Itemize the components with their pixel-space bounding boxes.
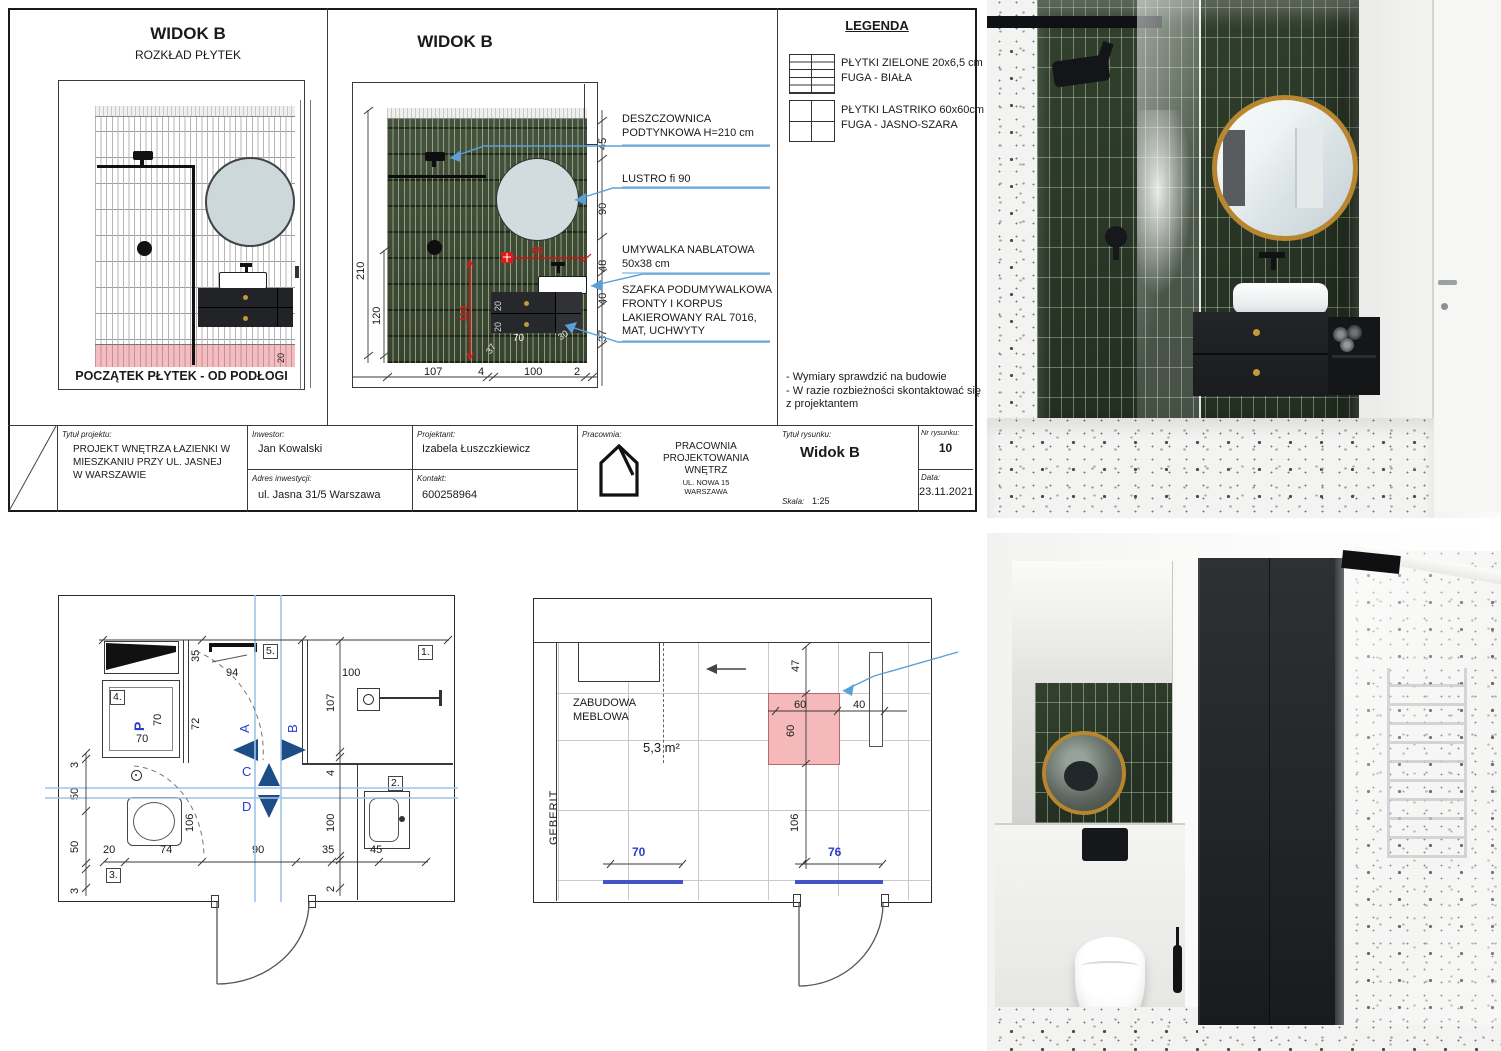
project-title: PROJEKT WNĘTRZA ŁAZIENKI W MIESZKANIU PR…: [73, 443, 230, 482]
dim-label: 40: [853, 699, 865, 713]
render-round-mirror: [1212, 95, 1358, 241]
legend-tile-lastriko-icon: [789, 100, 835, 142]
toilet-bowl: [133, 802, 175, 841]
date-label: Data:: [921, 473, 940, 482]
shower-head-stem: [140, 159, 144, 166]
section-arrow-d: [258, 795, 280, 818]
titleblock-top-line: [8, 425, 973, 426]
dim-label: 20: [276, 353, 287, 363]
reflection-dark-blob: [1064, 761, 1098, 791]
render-vanity-knob: [1253, 369, 1260, 376]
dim-label: 60: [794, 699, 806, 713]
drawing-title-value: Widok B: [800, 444, 860, 461]
render-shower-mixer: [1105, 226, 1127, 248]
plan1-wall: [188, 640, 189, 763]
legend-item-text: FUGA - JASNO-SZARA: [841, 119, 958, 133]
dim-label: 60: [785, 725, 799, 737]
door-handle: [1438, 280, 1457, 285]
contact-label: Kontakt:: [417, 474, 446, 483]
plan2-blue-wall-bar: [795, 880, 883, 884]
washbasin-bowl: [369, 798, 399, 842]
dim-label: 40: [597, 293, 611, 305]
section-arrow-a: [233, 739, 258, 761]
dim-label: 47: [790, 660, 804, 672]
panel2-ceiling-strip: [387, 108, 587, 119]
house-roof-line: [619, 446, 633, 475]
plan2-room-label: ZABUDOWA MEBLOWA: [573, 696, 636, 724]
dim-label: 210: [355, 262, 369, 280]
dim-label: 90: [597, 203, 611, 215]
basin-tap-stem: [557, 265, 560, 273]
vanity-side-split: [277, 288, 278, 327]
vanity-knob: [243, 295, 248, 300]
dim-label: 120: [371, 307, 385, 325]
annotation-line: DESZCZOWNICA: [622, 113, 754, 127]
panel1-door-edge: [300, 100, 301, 390]
shower-mixer-icon: [137, 241, 152, 256]
door-jamb: [211, 895, 219, 908]
panel1-ceiling-strip: [95, 106, 295, 117]
render-bottom: [987, 533, 1501, 1051]
floor-drain-dot: [135, 774, 137, 776]
annotation-underline: [622, 186, 770, 188]
red-dim-label: 85: [532, 246, 543, 259]
note-line: - Wymiary sprawdzić na budowie: [786, 371, 981, 385]
plan2-left-wall: [556, 642, 557, 901]
dim-label: 107: [325, 694, 339, 712]
panel1-footer-note: POCZĄTEK PŁYTEK - OD PODŁOGI: [60, 369, 303, 383]
fixture-mark: 3.: [106, 868, 121, 883]
dim-label: 100: [342, 667, 360, 681]
render-open-shelf: [1328, 317, 1380, 395]
door-jamb: [881, 894, 889, 907]
section-label-a: A: [237, 724, 252, 733]
vanity-knob: [243, 316, 248, 321]
dim-label: 35: [322, 844, 334, 858]
plan1-wall: [357, 765, 358, 900]
studio-address-line: UL. NOWA 15: [640, 478, 772, 487]
annotation-szafka: SZAFKA PODUMYWALKOWA FRONTY I KORPUS LAK…: [622, 284, 772, 339]
legend-item-text: PŁYTKI ZIELONE 20x6,5 cm: [841, 57, 983, 71]
mirror-reflection-door: [1295, 128, 1323, 208]
panel1-title: WIDOK B: [78, 24, 298, 44]
panel1-shower-frame-side: [192, 165, 195, 365]
dim-label: 3: [69, 762, 83, 768]
washbasin-tap: [399, 816, 405, 822]
shower-label-p: P: [131, 722, 147, 731]
render-glass-reflection: [1137, 110, 1197, 310]
door-keyhole: [1441, 303, 1448, 310]
panel1-door-handle: [295, 266, 299, 278]
dim-label: 20: [493, 322, 504, 332]
dim-label: 107: [424, 366, 442, 380]
number-value: 10: [918, 441, 973, 455]
annotation-line: MAT, UCHWYTY: [622, 325, 772, 339]
annotation-umywalka: UMYWALKA NABLATOWA 50x38 cm: [622, 244, 755, 272]
annotation-line: FRONTY I KORPUS: [622, 298, 772, 312]
plan2-geberit-label: GEBERIT: [548, 790, 562, 845]
designer-value: Izabela Łuszczkiewicz: [422, 443, 530, 457]
wardrobe-seam: [1269, 558, 1270, 1051]
plan1-shower-head-dot: [363, 694, 374, 705]
plan1-door-opening: [218, 897, 308, 903]
note-line: z projektantem: [786, 398, 981, 412]
legend-tile-green-icon: [789, 54, 835, 94]
annotation-line: SZAFKA PODUMYWALKOWA: [622, 284, 772, 298]
mirror-icon: [496, 158, 579, 241]
section-label-d: D: [242, 799, 251, 814]
dim-label: 100: [325, 814, 339, 832]
render-vanity-split: [1193, 353, 1328, 355]
dim-label: 2: [325, 886, 339, 892]
render-terrazzo-floor: [987, 418, 1434, 518]
titleblock-divider: [57, 425, 58, 512]
blue-dim-label: 76: [828, 845, 841, 859]
dim-label: 45: [370, 844, 382, 858]
dim-label: 106: [184, 814, 198, 832]
render-wall-tap-spout: [1271, 257, 1276, 270]
fixture-mark: 2.: [388, 776, 403, 791]
dim-label: 70: [136, 733, 148, 747]
render-flush-plate: [1082, 828, 1128, 861]
render-shower-rail: [987, 16, 1162, 28]
panel2-title: WIDOK B: [345, 32, 565, 52]
dim-label: 70: [152, 714, 166, 726]
dim-label: 90: [252, 844, 264, 858]
panel-divider-1: [327, 8, 328, 425]
contact-value: 600258964: [422, 489, 477, 503]
vanity-drawer-split: [198, 307, 293, 308]
plan2-radiator: [869, 652, 883, 747]
grab-bar-icon: [209, 643, 257, 647]
annotation-line: LAKIEROWANY RAL 7016,: [622, 312, 772, 326]
dim-label: 50: [69, 788, 83, 800]
room-label-line: ZABUDOWA: [573, 696, 636, 710]
designer-label: Projektant:: [417, 430, 455, 439]
vanity-knob: [524, 322, 529, 327]
annotation-line: UMYWALKA NABLATOWA: [622, 244, 755, 258]
render-door: [1432, 0, 1501, 512]
fixture-mark: 1.: [418, 645, 433, 660]
legend-title: LEGENDA: [777, 18, 977, 33]
dim-label: 2: [574, 366, 580, 380]
investor-value: Jan Kowalski: [258, 443, 322, 457]
date-value: 23.11.2021: [919, 486, 973, 500]
studio-address-line: WARSZAWA: [640, 487, 772, 496]
plan1-wall: [183, 640, 184, 763]
panel2-niche-edge-v: [584, 84, 585, 144]
render-towel-radiator: [1387, 668, 1467, 858]
dim-label: 72: [190, 718, 204, 730]
shelf-divider: [1332, 355, 1376, 358]
panel1-door-edge: [310, 100, 311, 388]
drawing-title-label: Tytuł rysunku:: [782, 430, 831, 439]
render-toilet-brush-handle: [1176, 927, 1179, 947]
titleblock-divider: [577, 425, 578, 512]
address-value: ul. Jasna 31/5 Warszawa: [258, 489, 380, 503]
studio-name-line: WNĘTRZ: [640, 465, 772, 477]
plan1-shelf-recess: [104, 641, 179, 674]
fixture-mark: 4.: [110, 690, 125, 705]
studio-name-line: PROJEKTOWANIA: [640, 453, 772, 465]
dim-label: 50: [69, 841, 83, 853]
annotation-underline: [622, 340, 770, 342]
room-label-line: MEBLOWA: [573, 710, 636, 724]
mirror-icon: [205, 157, 295, 247]
project-title-line: PROJEKT WNĘTRZA ŁAZIENKI W: [73, 443, 230, 456]
dim-label: 35: [190, 650, 204, 662]
shower-mixer-icon: [427, 240, 442, 255]
panel2-niche-edge-h: [584, 144, 597, 145]
plan1-door-swing: [217, 902, 309, 984]
section-label-b: B: [285, 724, 300, 733]
annotation-underline: [622, 272, 770, 274]
dim-label: 48: [597, 260, 611, 272]
dim-label: 20: [103, 844, 115, 858]
annotation-line: 50x38 cm: [622, 258, 755, 272]
vanity-drawer-split: [491, 313, 581, 314]
number-label: Nr rysunku:: [921, 428, 959, 437]
legend-item-text: PŁYTKI LASTRIKO 60x60cm: [841, 104, 984, 118]
dim-label: 37: [597, 330, 611, 342]
plan1-wall: [307, 640, 308, 764]
legend-notes: - Wymiary sprawdzić na budowie - W razie…: [786, 371, 981, 412]
section-label-c: C: [242, 764, 251, 779]
render-vanity-knob: [1253, 329, 1260, 336]
render-wardrobe: [1198, 558, 1335, 1051]
dim-label: 100: [524, 366, 542, 380]
studio-name: PRACOWNIA PROJEKTOWANIA WNĘTRZ UL. NOWA …: [640, 441, 772, 496]
door-jamb: [793, 894, 801, 907]
plan2-blue-wall-bar: [603, 880, 683, 884]
plan1-shower-arm: [379, 697, 441, 699]
door-jamb: [308, 895, 316, 908]
render-reflected-round-mirror: [1042, 731, 1126, 815]
plan2-door-opening: [800, 896, 882, 903]
vanity-knob: [524, 301, 529, 306]
panel1-first-tile-row: [95, 344, 295, 367]
scale-label: Skala:: [782, 497, 804, 506]
note-line: - W razie rozbieżności skontaktować się: [786, 385, 981, 399]
legend-item-text: FUGA - BIAŁA: [841, 72, 912, 86]
annotation-line: LUSTRO fi 90: [622, 173, 690, 187]
dim-label: 74: [160, 844, 172, 858]
dim-label: 20: [493, 301, 504, 311]
project-title-line: MIESZKANIU PRZY UL. JASNEJ: [73, 456, 230, 469]
render-floor-left: [987, 1007, 1198, 1033]
studio-house-logo: [594, 441, 640, 499]
basin-icon: [219, 272, 267, 289]
dim-label: 3: [69, 888, 83, 894]
blue-dim-label: 70: [632, 845, 645, 859]
grab-bar-end: [254, 643, 257, 652]
dim-label: 70: [513, 333, 524, 346]
project-title-line: W WARSZAWIE: [73, 469, 230, 482]
dim-label: 94: [226, 667, 238, 681]
render-toilet-brush: [1173, 945, 1182, 993]
wardrobe-edge-highlight: [1198, 558, 1200, 1051]
red-dim-label: 110: [459, 306, 472, 322]
panel2-shower-partition: [388, 175, 486, 178]
titleblock-split-line: [247, 469, 577, 470]
panel1-subtitle: ROZKŁAD PŁYTEK: [78, 48, 298, 62]
grab-bar-end: [209, 643, 212, 652]
annotation-underline: [622, 144, 770, 146]
render-vessel-basin: [1233, 283, 1328, 314]
plan2-door-swing: [799, 903, 883, 986]
investor-label: Inwestor:: [252, 430, 284, 439]
shower-head-stem: [432, 160, 436, 167]
towel-roll: [1340, 338, 1354, 352]
plan1-shower-arm-plate: [439, 690, 442, 706]
studio-label: Pracownia:: [582, 430, 622, 439]
render-mixer-stem: [1113, 246, 1119, 260]
annotation-deszczownica: DESZCZOWNICA PODTYNKOWA H=210 cm: [622, 113, 754, 141]
section-arrow-c: [258, 763, 280, 786]
titleblock-split-line: [918, 469, 973, 470]
annotation-lustro: LUSTRO fi 90: [622, 173, 690, 187]
section-arrow-b: [281, 739, 306, 761]
screenshot-root: WIDOK B ROZKŁAD PŁYTEK 20 POCZĄTEK PŁYTE…: [0, 0, 1501, 1051]
render-toilet-seat-line: [1081, 961, 1139, 971]
mirror-reflection-dark: [1223, 130, 1245, 206]
scale-value: 1:25: [812, 496, 830, 506]
address-label: Adres inwestycji:: [252, 474, 312, 483]
plan2-niche: [578, 642, 660, 682]
annotation-line: PODTYNKOWA H=210 cm: [622, 127, 754, 141]
render-top: [987, 0, 1501, 518]
plan2-area-label: 5,3 m²: [643, 740, 680, 755]
plan1-wall: [302, 763, 453, 765]
panel-divider-2: [777, 8, 778, 425]
panel1-shower-frame-top: [97, 165, 194, 168]
dim-label: 106: [789, 814, 803, 832]
wardrobe-gap-shadow: [1335, 558, 1344, 1051]
fixture-mark: 5.: [263, 644, 278, 659]
dim-label: 4: [325, 770, 339, 776]
project-title-label: Tytuł projektu:: [62, 430, 112, 439]
dim-label: 45: [597, 138, 611, 150]
dim-label: 4: [478, 366, 484, 380]
studio-name-line: PRACOWNIA: [640, 441, 772, 453]
